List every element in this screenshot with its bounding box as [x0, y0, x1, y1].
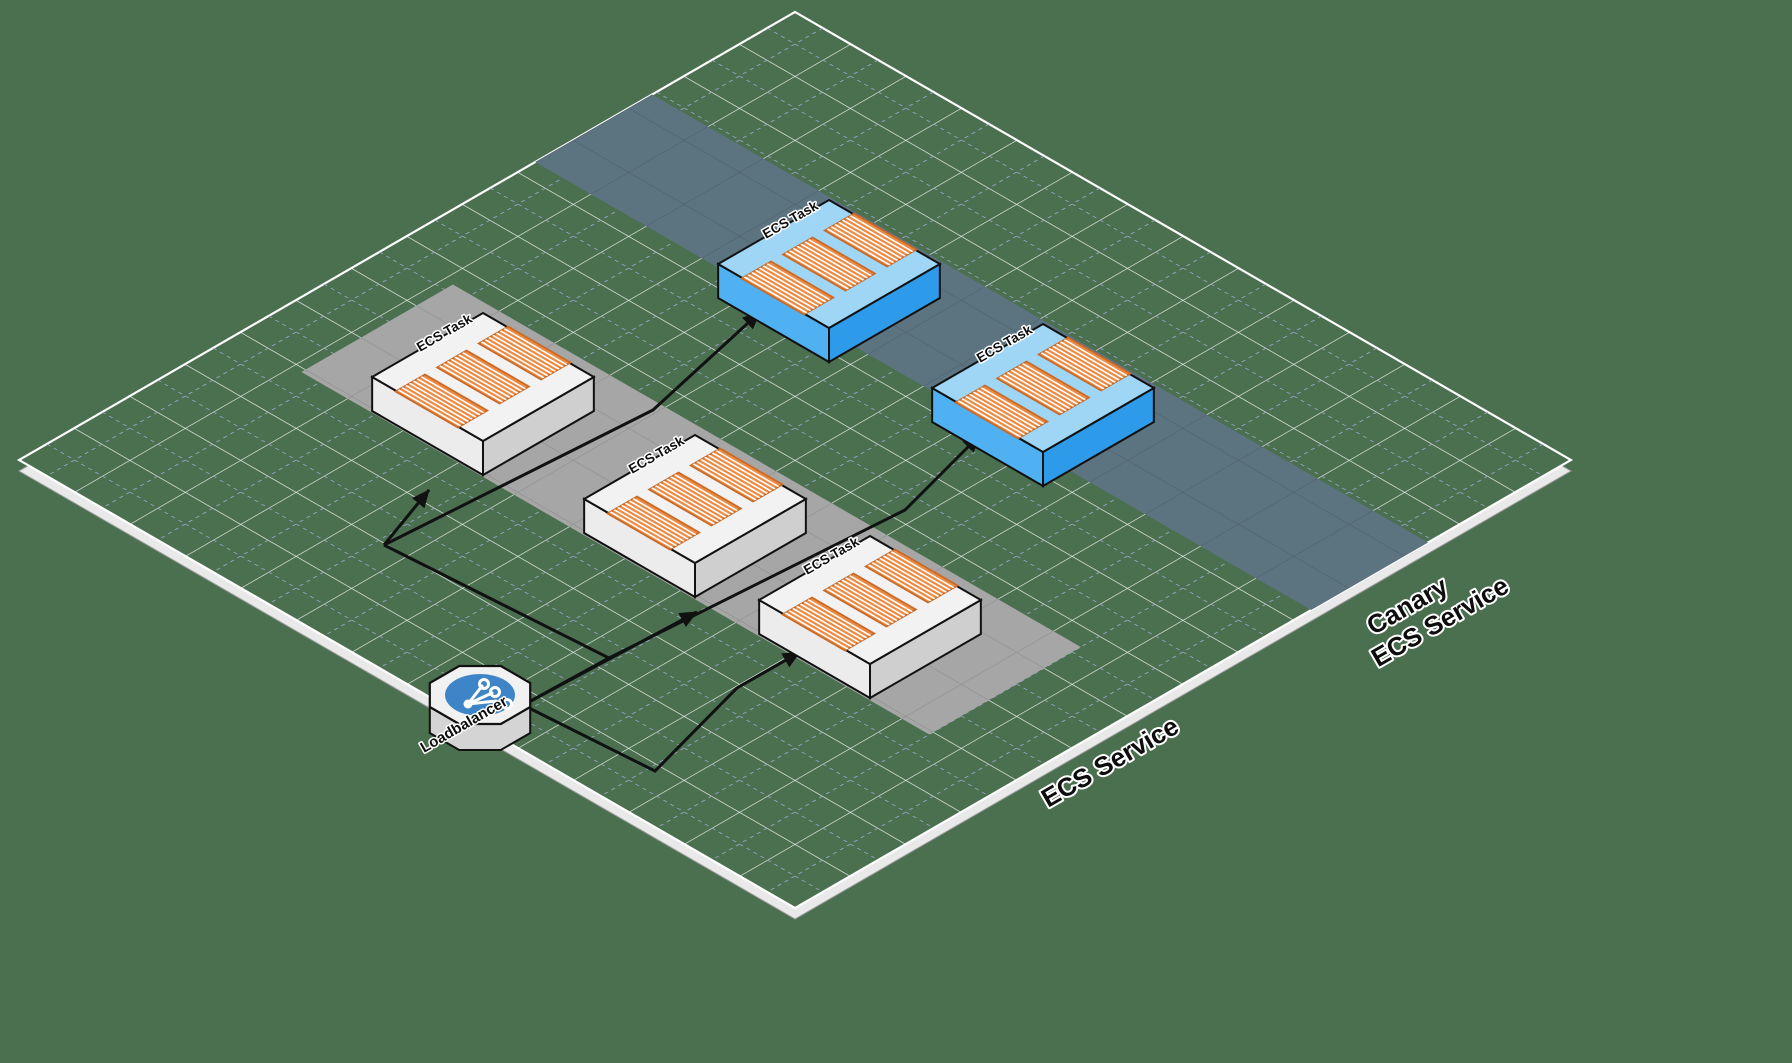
- isometric-diagram: ECS Task ECS Task ECS Task ECS Task: [0, 0, 1792, 1063]
